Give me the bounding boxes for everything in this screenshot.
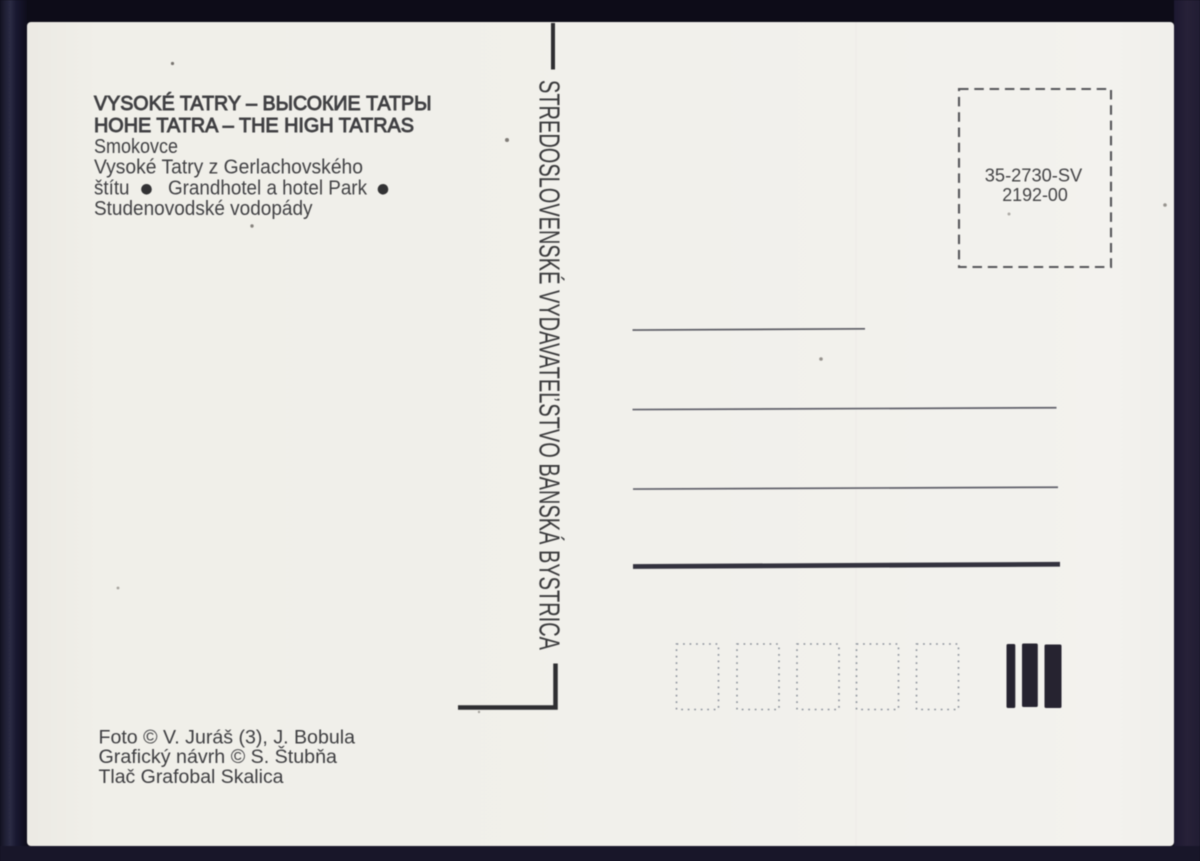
svg-text:35-2730-SV: 35-2730-SV — [985, 166, 1083, 186]
svg-text:VYSOKÉ TATRY – ВЫСОКИЕ ТАТРЫ: VYSOKÉ TATRY – ВЫСОКИЕ ТАТРЫ — [94, 92, 432, 115]
svg-text:2192-00: 2192-00 — [1002, 185, 1068, 205]
svg-text:Studenovodské vodopády: Studenovodské vodopády — [94, 198, 313, 220]
svg-text:Grandhotel a hotel Park: Grandhotel a hotel Park — [168, 178, 368, 200]
svg-text:Vysoké Tatry z Gerlachovského: Vysoké Tatry z Gerlachovského — [94, 157, 363, 179]
svg-text:Foto © V. Juráš (3), J. Bobula: Foto © V. Juráš (3), J. Bobula — [99, 727, 356, 748]
svg-text:Tlač Grafobal Skalica: Tlač Grafobal Skalica — [99, 767, 284, 788]
svg-text:STREDOSLOVENSKÉ VYDAVATEĽSTVO: STREDOSLOVENSKÉ VYDAVATEĽSTVO BANSKÁ BYS… — [533, 80, 566, 650]
svg-text:štítu: štítu — [94, 178, 130, 200]
svg-text:HOHE TATRA – THE HIGH TATRAS: HOHE TATRA – THE HIGH TATRAS — [94, 115, 414, 137]
svg-text:Grafický návrh © S. Štubňa: Grafický návrh © S. Štubňa — [99, 746, 338, 768]
svg-text:Smokovce: Smokovce — [94, 136, 178, 158]
